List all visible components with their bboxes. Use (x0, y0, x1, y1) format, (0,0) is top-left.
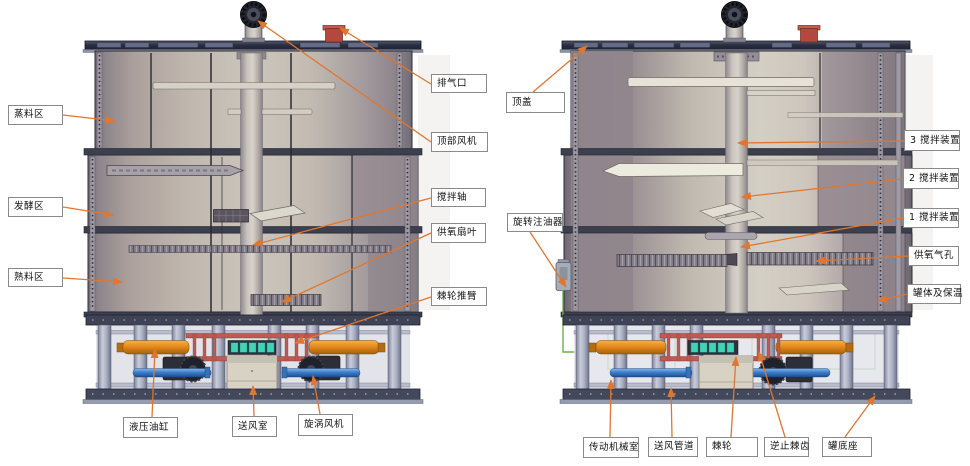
label-air-supply-chamber: 送风室 (232, 416, 277, 437)
label-air-supply-duct: 送风管道 (648, 437, 698, 457)
label-text: 3 搅拌装置 (910, 136, 960, 146)
label-steam-zone: 蒸料区 (8, 105, 63, 125)
label-vortex-fan: 旋涡风机 (298, 414, 353, 436)
bottom-beam-right (563, 389, 910, 400)
diagram-page: 蒸料区 发酵区 熟料区 排气口 顶部风机 搅拌轴 供氧扇叶 棘轮推臂 顶盖 旋转… (0, 0, 970, 466)
top-fan-illustration-right (722, 2, 748, 43)
exhaust-outlet-illustration (323, 26, 345, 43)
label-cooked-zone: 熟料区 (8, 268, 63, 287)
label-agitator-2: 2 搅拌装置 (903, 168, 959, 189)
label-text: 液压油缸 (129, 423, 169, 433)
label-text: 排气口 (437, 79, 467, 89)
label-exhaust-outlet: 排气口 (431, 74, 487, 93)
label-tank-base: 罐底座 (822, 437, 872, 457)
skid-right (560, 400, 912, 404)
label-text: 发酵区 (14, 202, 44, 212)
label-text: 供氧扇叶 (437, 228, 477, 238)
label-text: 供氧气孔 (914, 251, 954, 261)
label-text: 旋涡风机 (304, 420, 344, 430)
label-text: 旋转注油器 (513, 218, 563, 228)
label-text: 罐体及保温 (913, 289, 963, 299)
label-top-cover: 顶盖 (506, 92, 565, 113)
label-text: 送风室 (238, 422, 268, 432)
label-anti-reverse-pawl: 逆止棘齿 (764, 437, 809, 457)
label-text: 蒸料区 (14, 110, 44, 120)
label-transmission-room: 传动机械室 (583, 437, 639, 458)
label-text: 2 搅拌装置 (909, 174, 959, 184)
label-agitator-1: 1 搅拌装置 (903, 208, 959, 228)
label-ratchet: 棘轮 (706, 437, 758, 457)
label-text: 传动机械室 (589, 443, 639, 453)
label-text: 1 搅拌装置 (909, 213, 959, 223)
air-chamber-box-left (227, 356, 277, 390)
label-text: 熟料区 (14, 273, 44, 283)
label-text: 顶盖 (512, 98, 532, 108)
label-fermentation-zone: 发酵区 (8, 197, 63, 217)
label-oxygen-fan-blade: 供氧扇叶 (431, 223, 486, 243)
top-fan-illustration (241, 2, 267, 43)
label-text: 顶部风机 (437, 137, 477, 147)
label-rotary-oiler: 旋转注油器 (507, 213, 563, 232)
label-text: 送风管道 (654, 442, 694, 452)
label-agitator-3: 3 搅拌装置 (904, 130, 960, 151)
shadow-left-tank (418, 55, 450, 310)
label-ratchet-push-arm: 棘轮推臂 (431, 287, 487, 306)
agitator-shaft-left (237, 53, 266, 316)
left-tank-illustration (83, 2, 423, 404)
label-text: 罐底座 (828, 442, 858, 452)
label-hydraulic-cylinder: 液压油缸 (123, 417, 178, 438)
label-agitator-shaft: 搅拌轴 (431, 188, 486, 207)
label-oxygen-air-holes: 供氧气孔 (908, 246, 959, 266)
air-chamber-box-right (699, 356, 753, 392)
right-tank-illustration (556, 2, 912, 404)
exhaust-outlet-illustration-right (798, 26, 820, 43)
label-text: 棘轮推臂 (437, 292, 477, 302)
label-top-fan: 顶部风机 (431, 132, 488, 152)
label-text: 搅拌轴 (437, 193, 467, 203)
label-tank-body-insulation: 罐体及保温 (907, 284, 961, 304)
label-text: 棘轮 (712, 442, 732, 452)
label-text: 逆止棘齿 (770, 442, 810, 452)
